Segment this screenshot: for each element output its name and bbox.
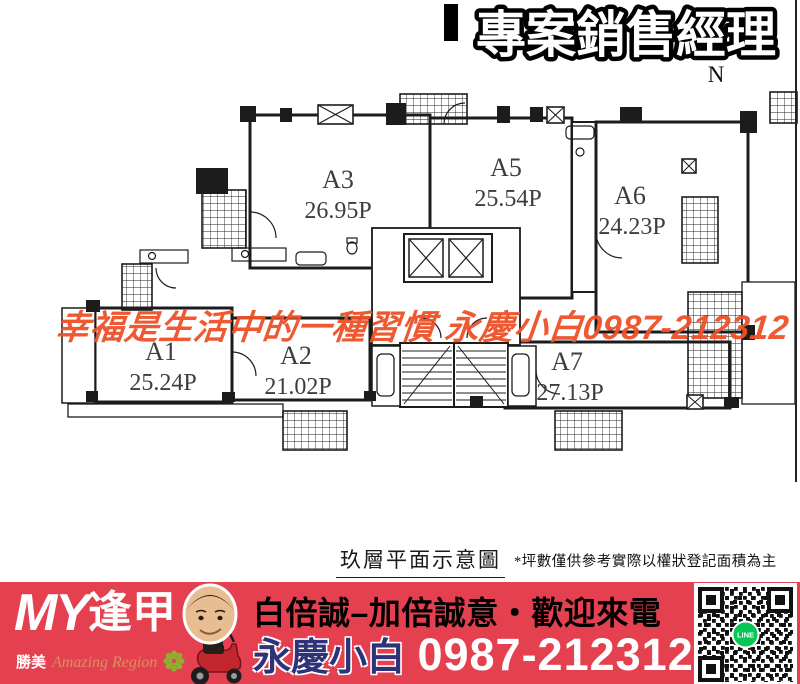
area-disclaimer: *坪數僅供參考實際以權狀登記面積為主 <box>514 550 777 571</box>
stairwell <box>372 343 536 407</box>
contact-line: 永慶小白 0987-212312 <box>253 626 689 681</box>
brand-name-cjk: 逢甲 <box>88 588 176 637</box>
brand-sub-cjk: 勝美 <box>16 654 46 671</box>
agent-face <box>184 585 236 643</box>
sales-heading: 專案銷售經理 <box>440 0 800 72</box>
north-indicator: N <box>700 62 732 88</box>
brand-sub-en: Amazing Region <box>52 654 157 671</box>
agent-photo <box>170 582 260 684</box>
svg-text:A5: A5 <box>490 153 522 182</box>
footer-banner: MY逢甲 勝美Amazing Region <box>0 580 800 684</box>
svg-text:21.02P: 21.02P <box>264 374 331 400</box>
svg-text:LINE: LINE <box>737 631 754 640</box>
page-margin-line <box>795 0 797 482</box>
heading-title: 專案銷售經理 <box>476 7 776 63</box>
flyer-page: A3 26.95P A5 25.54P A6 24.23P A1 25.24P … <box>0 0 800 684</box>
svg-text:25.24P: 25.24P <box>129 370 196 396</box>
floor-plan: A3 26.95P A5 25.54P A6 24.23P A1 25.24P … <box>0 0 800 560</box>
brand-name: MY逢甲 <box>14 584 179 642</box>
phone-number: 0987-212312 <box>417 629 693 680</box>
svg-text:A3: A3 <box>322 165 354 194</box>
svg-text:25.54P: 25.54P <box>474 186 541 212</box>
brand-logo: MY逢甲 勝美Amazing Region <box>14 584 179 684</box>
agent-name: 永慶小白 <box>253 637 405 679</box>
line-icon: LINE <box>733 622 759 648</box>
line-qr-code: LINE <box>694 583 797 684</box>
brand-name-en: MY <box>14 584 88 642</box>
svg-text:A7: A7 <box>551 347 583 376</box>
svg-text:24.23P: 24.23P <box>598 214 665 240</box>
svg-text:27.13P: 27.13P <box>536 380 603 406</box>
plan-caption: 玖層平面示意圖 <box>336 544 505 581</box>
elevators <box>404 234 492 282</box>
heading-block <box>444 4 458 41</box>
svg-text:A6: A6 <box>614 181 646 210</box>
svg-text:26.95P: 26.95P <box>304 198 371 224</box>
brand-subtitle: 勝美Amazing Region <box>16 650 185 672</box>
agent-watermark: 幸福是生活中的一種習慣 永慶小白0987-212312 <box>54 300 800 346</box>
